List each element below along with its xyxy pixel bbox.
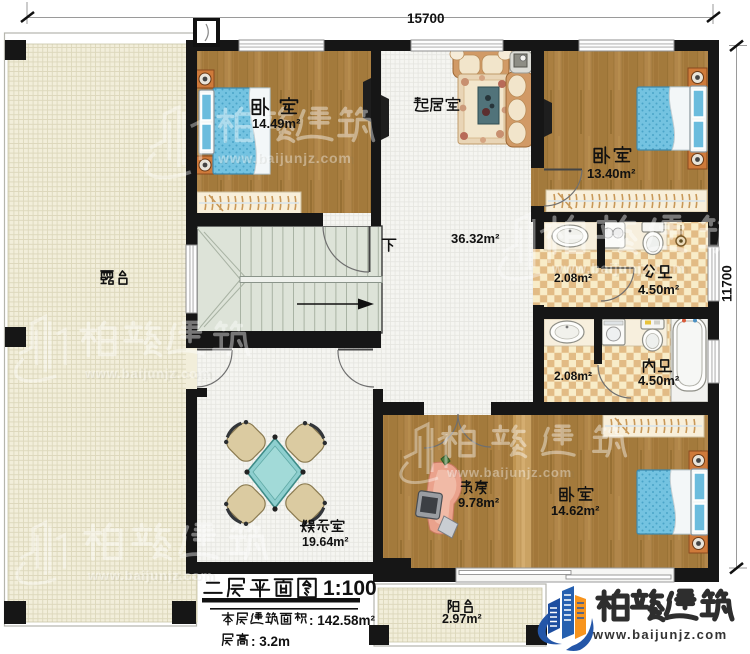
svg-text:www.baijunjz.com: www.baijunjz.com — [592, 627, 728, 642]
svg-text:: 3.2m: : 3.2m — [251, 634, 290, 649]
svg-text:13.40m²: 13.40m² — [587, 166, 636, 181]
svg-text:www.baijunjz.com: www.baijunjz.com — [217, 150, 352, 166]
svg-text:: 142.58m²: : 142.58m² — [309, 613, 376, 628]
svg-text:14.62m²: 14.62m² — [551, 503, 600, 518]
svg-text:4.50m²: 4.50m² — [638, 282, 680, 297]
svg-text:14.49m²: 14.49m² — [252, 116, 301, 131]
svg-text:www.baijunjz.com: www.baijunjz.com — [84, 366, 210, 381]
svg-text:2.97m²: 2.97m² — [442, 612, 482, 626]
svg-text:15700: 15700 — [407, 11, 445, 26]
svg-text:2.08m²: 2.08m² — [554, 271, 592, 285]
svg-text:4.50m²: 4.50m² — [638, 373, 680, 388]
svg-text:11700: 11700 — [720, 265, 735, 302]
svg-text:1:100: 1:100 — [323, 577, 377, 600]
svg-text:9.78m²: 9.78m² — [458, 495, 500, 510]
svg-text:www.baijunjz.com: www.baijunjz.com — [446, 465, 572, 480]
svg-text:www.baijunjz.com: www.baijunjz.com — [87, 568, 213, 583]
svg-text:2.08m²: 2.08m² — [554, 369, 592, 383]
svg-text:36.32m²: 36.32m² — [451, 231, 500, 246]
svg-text:19.64m²: 19.64m² — [302, 535, 349, 549]
